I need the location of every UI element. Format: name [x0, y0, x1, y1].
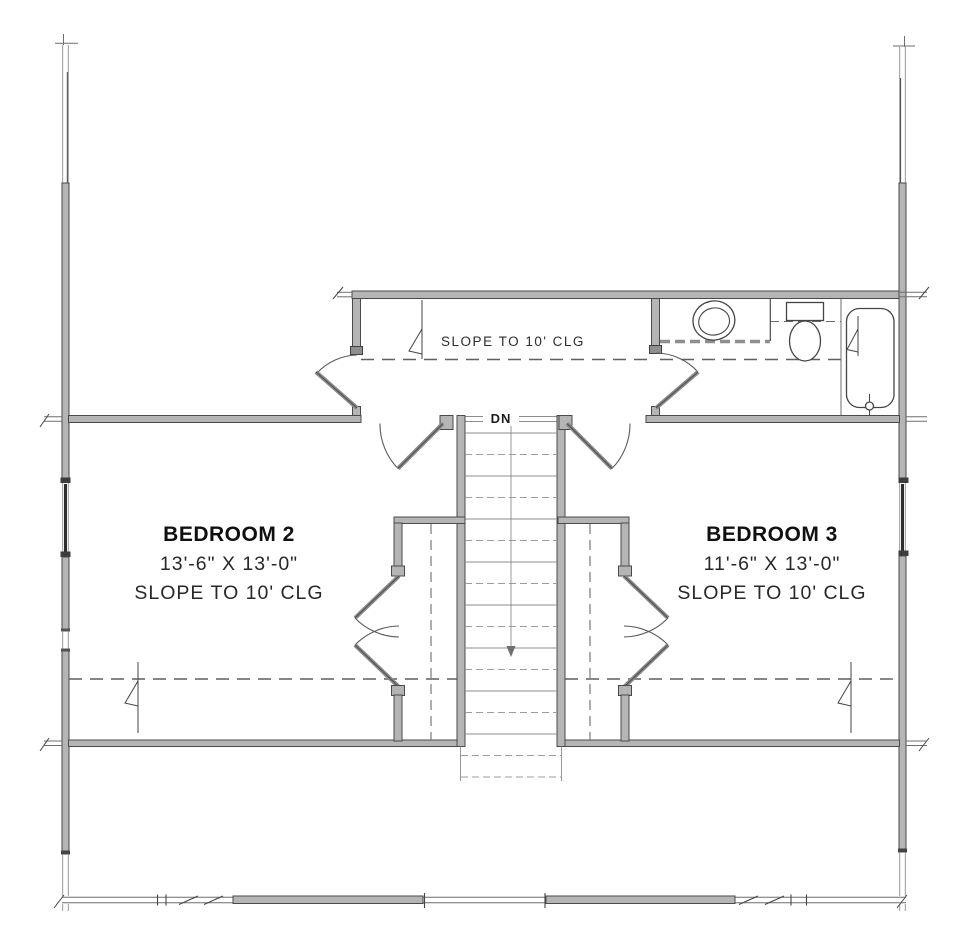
bedroom3-dimensions: 11'-6" X 13'-0" [704, 553, 841, 575]
door-bedroom3 [567, 424, 630, 469]
door-jamb [650, 346, 662, 354]
stairs-down-label: DN [491, 411, 512, 426]
right-window-glazing [901, 484, 904, 551]
door-jamb [351, 347, 363, 355]
bedroom2-ceiling-note: SLOPE TO 10' CLG [134, 582, 323, 604]
stair-direction-arrow-icon [507, 646, 516, 657]
hallway-ceiling-note: SLOPE TO 10' CLG [441, 334, 585, 349]
bedroom3-ceiling-note: SLOPE TO 10' CLG [677, 582, 866, 604]
bathtub-icon [847, 309, 895, 417]
left-window-glazing [64, 484, 67, 552]
bottom-left-window [158, 895, 224, 906]
left-wall-cap [61, 851, 70, 855]
sink-icon [689, 297, 738, 344]
slope-marker-hallway [409, 300, 422, 359]
right-window-sill [899, 551, 909, 557]
bedroom2-dimensions: 13'-6" X 13'-0" [160, 553, 298, 575]
door-bathroom [656, 353, 698, 408]
staircase: DN [440, 407, 572, 781]
right-window-sill [899, 478, 909, 484]
door-hallway-left [316, 355, 357, 408]
closet-bedroom2 [355, 517, 465, 741]
slope-marker-bedroom3 [838, 662, 851, 733]
slope-marker-bedroom2 [125, 662, 138, 733]
left-window-sill [61, 552, 71, 558]
bathroom [660, 297, 894, 416]
bedroom2-label: BEDROOM 2 13'-6" X 13'-0" SLOPE TO 10' C… [134, 523, 323, 604]
left-window-sill [61, 478, 71, 484]
bedroom2-name: BEDROOM 2 [163, 523, 295, 546]
door-bedroom2 [380, 424, 443, 469]
bottom-right-window [739, 895, 807, 906]
right-wall-cap [898, 849, 907, 853]
exterior-walls [54, 34, 915, 911]
floor-plan: DN [0, 0, 973, 947]
ceiling-slope-lines [69, 322, 899, 680]
bedroom3-label: BEDROOM 3 11'-6" X 13'-0" SLOPE TO 10' C… [677, 523, 866, 604]
closet-bedroom3 [558, 517, 668, 741]
toilet-icon [787, 303, 824, 362]
bedroom3-name: BEDROOM 3 [706, 523, 838, 546]
